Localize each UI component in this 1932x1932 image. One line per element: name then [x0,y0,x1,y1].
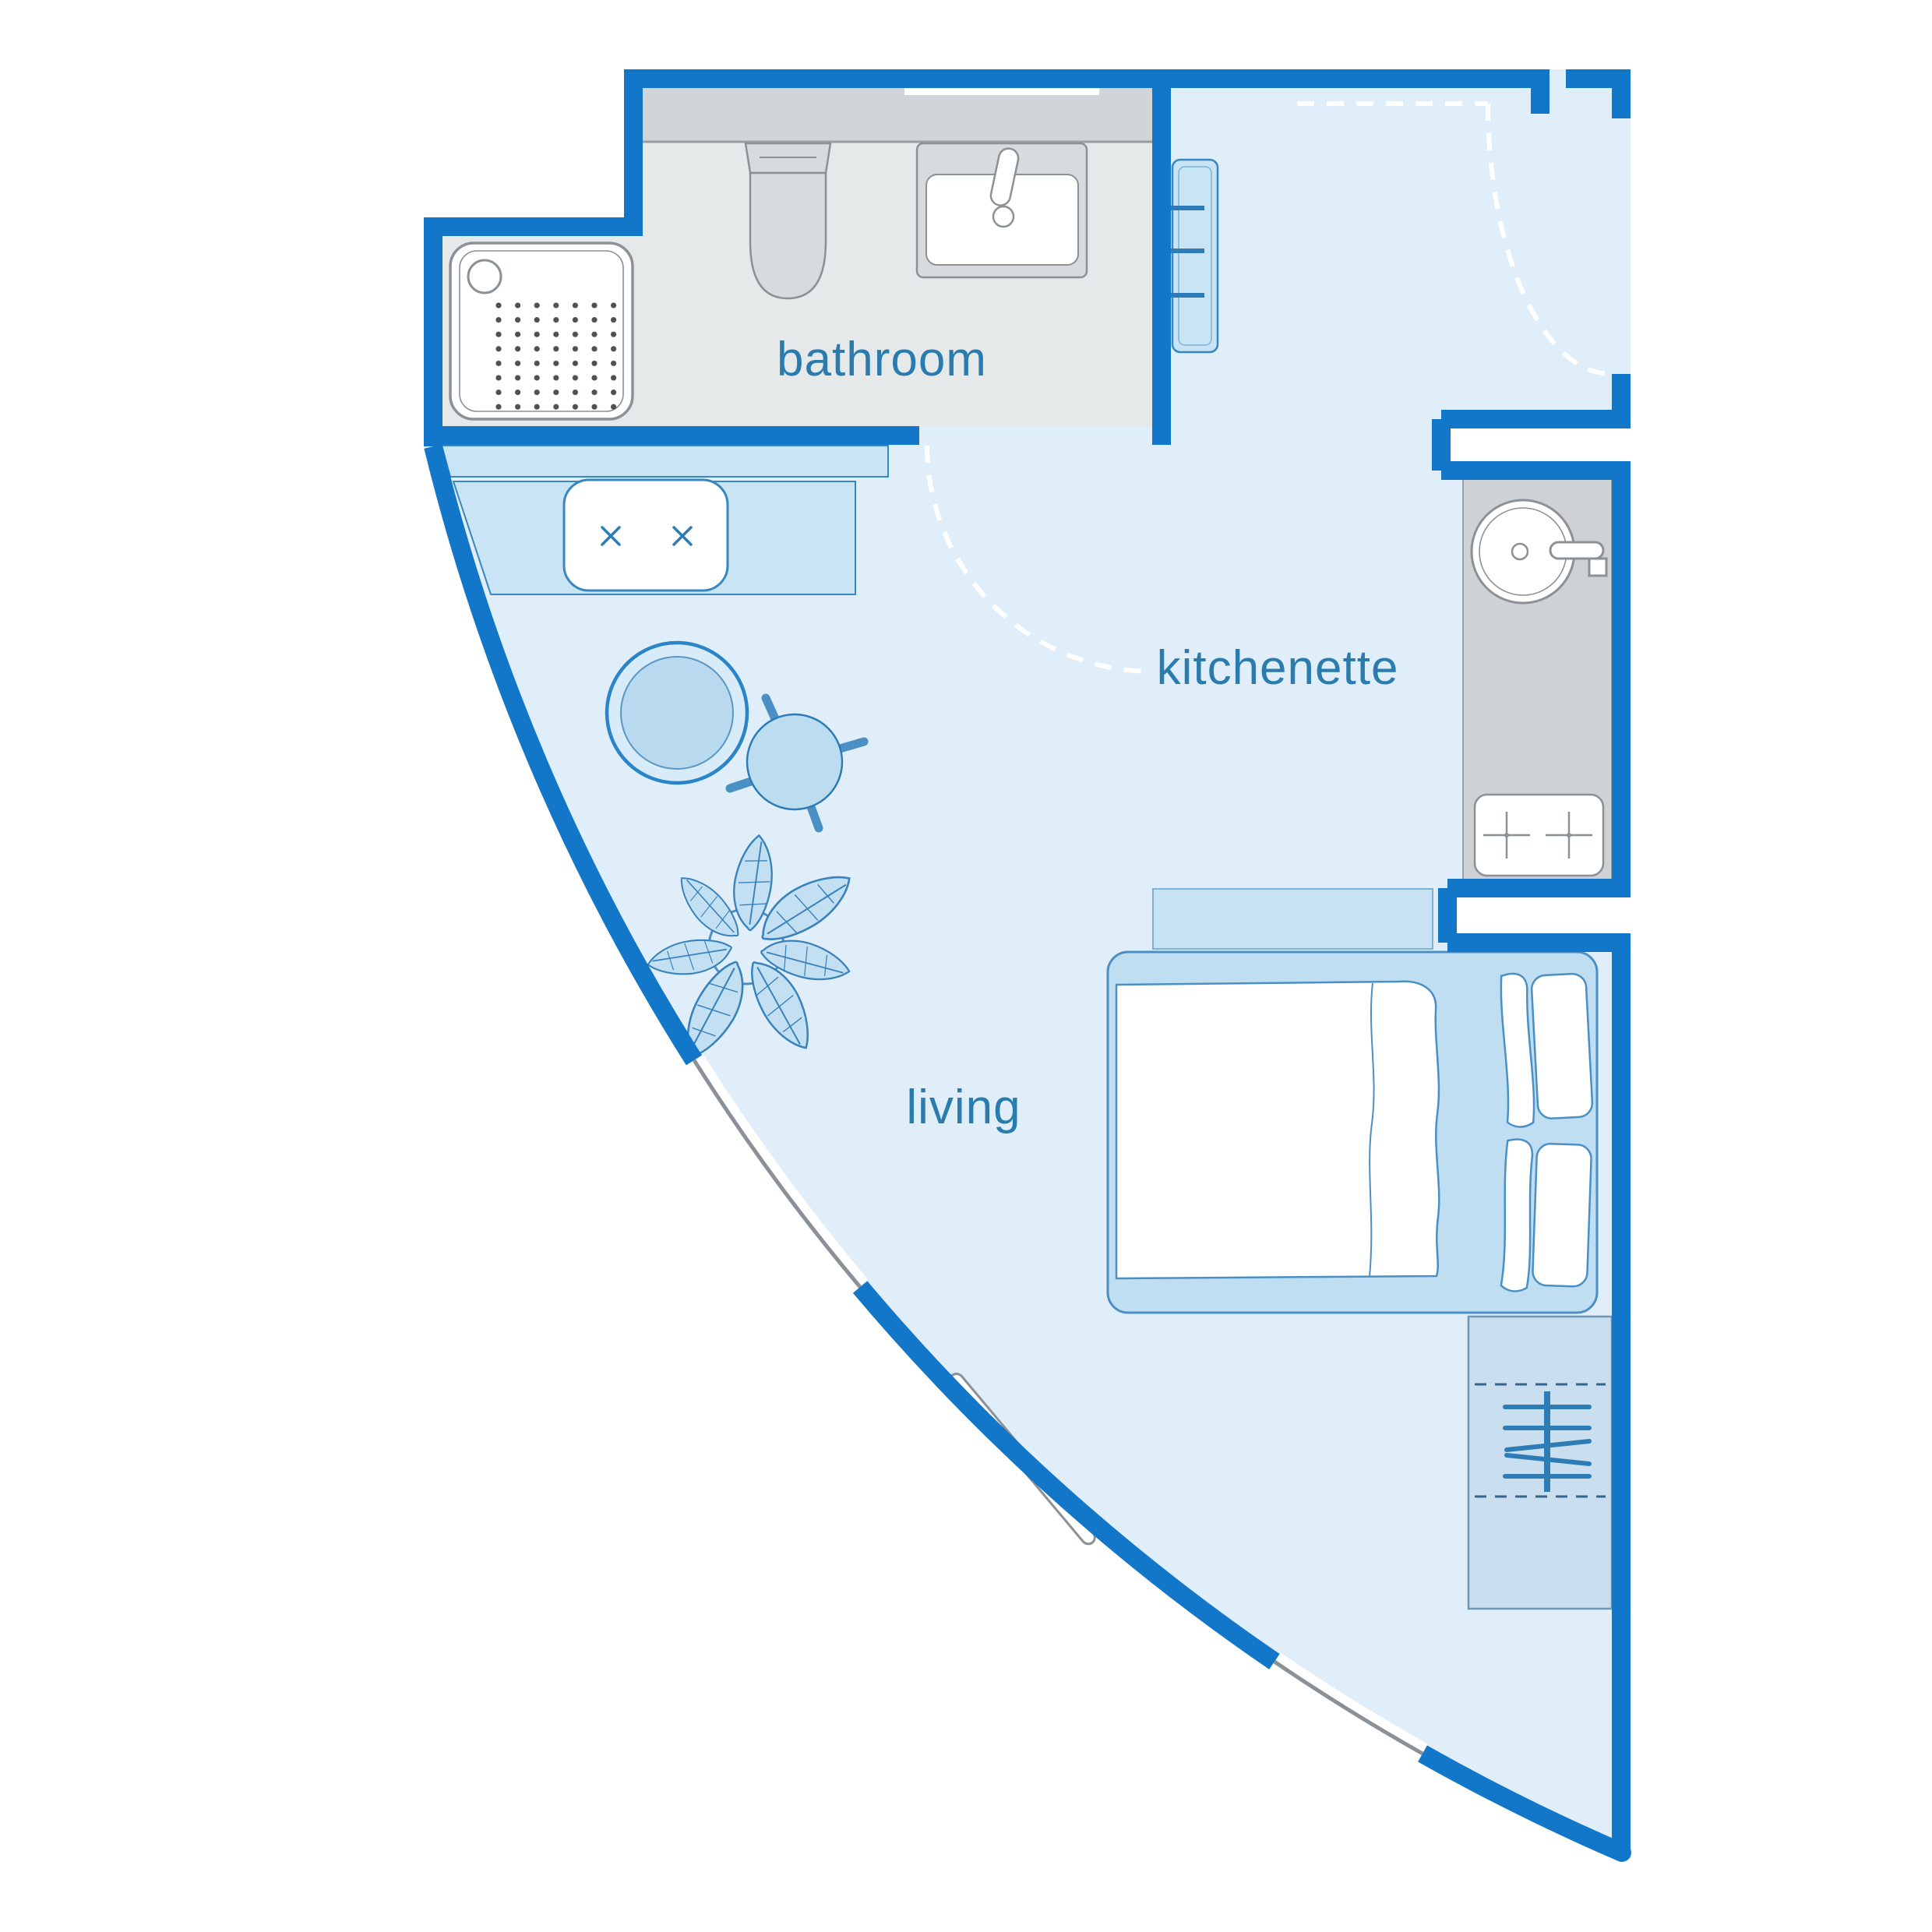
pillow [1500,970,1593,1127]
pillow [1501,1139,1592,1294]
floorplan-svg: bathroom kitchenette living [0,0,1932,1932]
living-label: living [906,1081,1021,1134]
slot-opening-upper [1451,428,1638,461]
rug [607,643,747,783]
bathroom-label: bathroom [777,333,987,386]
sofa [564,480,728,591]
toilet [746,143,830,298]
floorplan-page: bathroom kitchenette living [0,0,1932,1932]
headboard-shelf [1153,889,1433,949]
slot-opening-lower [1457,897,1638,933]
wardrobe [1468,1317,1612,1609]
hob [1475,795,1603,876]
double-bed [1108,952,1597,1313]
kitchenette-label: kitchenette [1157,641,1399,695]
duvet [1116,982,1439,1278]
entry-radiator [1169,160,1218,352]
wall-shelf [442,446,888,477]
vanity-counter [643,88,1152,142]
bathroom-sink [917,143,1087,277]
shower-drain [468,260,501,293]
shower-tray [450,243,633,419]
